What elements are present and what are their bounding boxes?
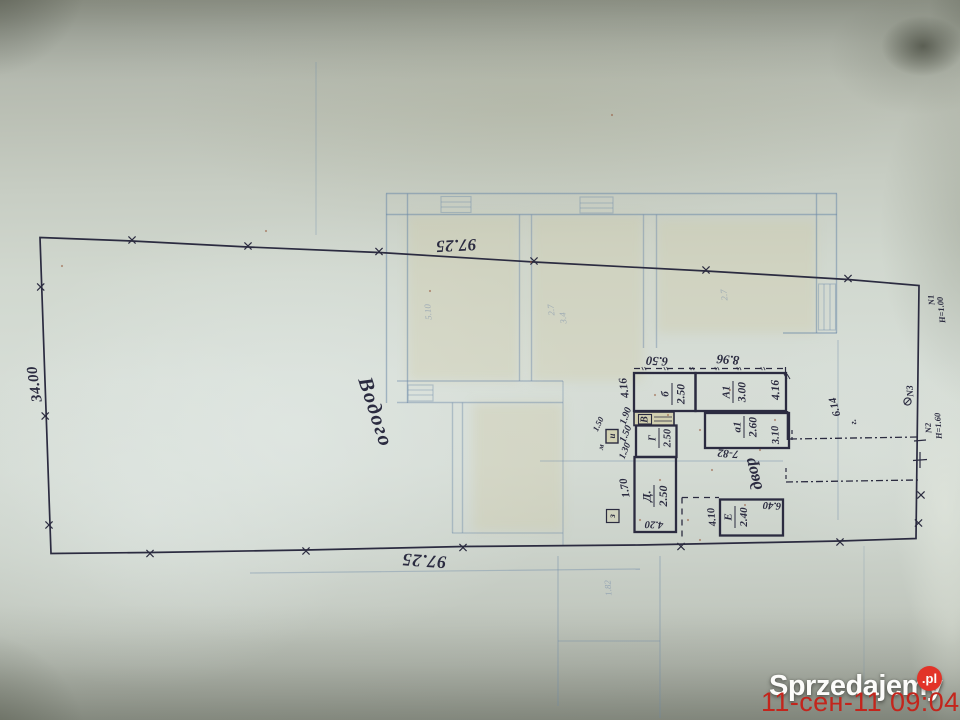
svg-text:2.60: 2.60: [748, 417, 760, 438]
svg-text:1.90: 1.90: [618, 406, 634, 426]
svg-text:7-82: 7-82: [717, 446, 739, 459]
svg-text:3.00: 3.00: [737, 382, 749, 403]
svg-text:3.10: 3.10: [770, 425, 782, 446]
svg-text:и: и: [607, 433, 617, 438]
svg-text:3.4: 3.4: [557, 311, 568, 325]
svg-text:двор: двор: [740, 456, 767, 493]
svg-text:Е: Е: [723, 513, 735, 521]
svg-text:34.00: 34.00: [24, 365, 46, 404]
svg-text:б: б: [660, 391, 672, 397]
svg-text:г.: г.: [848, 418, 859, 425]
svg-text:2.50: 2.50: [676, 384, 688, 405]
svg-text:2.40: 2.40: [738, 507, 750, 528]
svg-text:H=1.00: H=1.00: [935, 296, 948, 325]
svg-text:Г: Г: [648, 434, 659, 442]
svg-text:97.25: 97.25: [401, 549, 447, 572]
svg-text:4.20: 4.20: [644, 518, 664, 530]
svg-text:1.50: 1.50: [618, 424, 635, 444]
svg-text:6.14: 6.14: [827, 396, 844, 418]
svg-text:4.16: 4.16: [769, 379, 782, 401]
svg-text:1.50: 1.50: [590, 414, 606, 432]
svg-text:6.50: 6.50: [645, 353, 668, 368]
svg-text:а1: а1: [732, 422, 744, 433]
svg-text:з: з: [608, 514, 618, 519]
svg-text:А1: А1: [721, 386, 733, 400]
svg-text:4.16: 4.16: [617, 377, 632, 400]
svg-text:97.25: 97.25: [435, 235, 477, 256]
svg-text:1.70: 1.70: [617, 477, 632, 499]
svg-text:Водого: Водого: [353, 373, 399, 450]
svg-text:2.50: 2.50: [656, 486, 670, 508]
svg-text:2.7: 2.7: [718, 288, 729, 301]
svg-text:H=1.60: H=1.60: [932, 412, 944, 441]
svg-text:Д.: Д.: [640, 490, 654, 502]
svg-text:1.30: 1.30: [618, 441, 634, 460]
svg-text:1.82: 1.82: [602, 579, 613, 596]
svg-text:N3: N3: [906, 385, 917, 399]
svg-text:В: В: [640, 416, 651, 424]
svg-text:4.10: 4.10: [706, 506, 719, 527]
svg-text:2.7: 2.7: [545, 303, 556, 316]
svg-text:8.96: 8.96: [716, 352, 740, 369]
svg-text:2.50: 2.50: [663, 428, 674, 448]
svg-text:м: м: [596, 443, 606, 451]
svg-text:6.40: 6.40: [762, 499, 782, 511]
svg-text:5.10: 5.10: [422, 303, 433, 320]
svg-text:N1: N1: [925, 294, 936, 306]
svg-text:N2: N2: [923, 422, 934, 435]
